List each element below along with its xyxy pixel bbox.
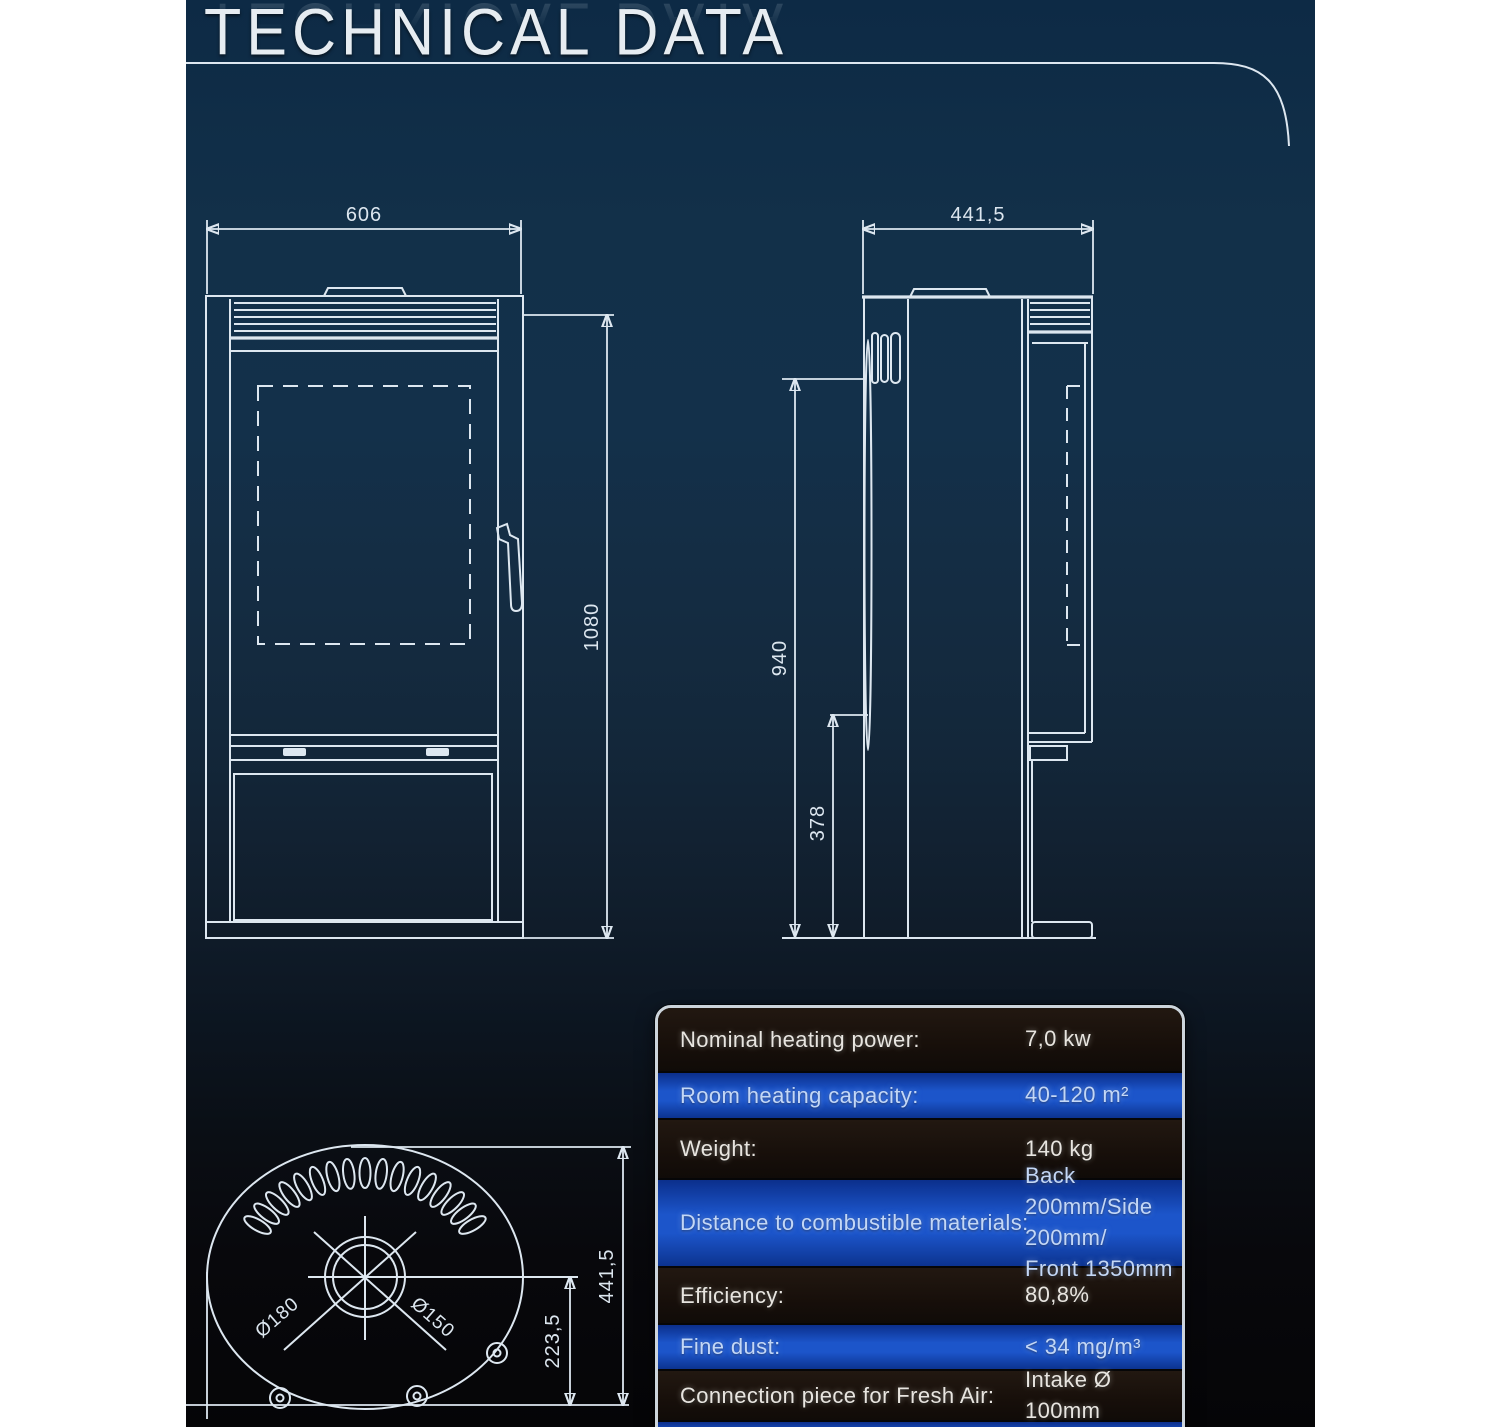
top-view-drawing: Ø180 Ø150 223,5 441,5 bbox=[186, 1145, 631, 1419]
spec-label: Connection piece for Fresh Air: bbox=[658, 1383, 1025, 1409]
spec-label: Weight: bbox=[658, 1136, 1025, 1162]
spec-value: 140 kg bbox=[1025, 1134, 1182, 1165]
flue-inner-diameter-label: Ø150 bbox=[407, 1293, 459, 1342]
table-row: Room heating capacity: 40-120 m² bbox=[658, 1071, 1182, 1118]
side-height-dimension: 940 bbox=[769, 640, 791, 676]
side-handle-blade bbox=[865, 340, 872, 750]
front-door-glass-outline bbox=[258, 386, 470, 644]
spec-value: 7,0 kw bbox=[1025, 1024, 1182, 1055]
side-handle-bar bbox=[872, 333, 878, 383]
side-handle-bar bbox=[891, 333, 900, 383]
spec-label: Nominal heating power: bbox=[658, 1027, 1025, 1053]
header-underline-swoosh bbox=[186, 63, 1289, 146]
front-door-handle bbox=[497, 524, 522, 611]
side-depth-dimension: 441,5 bbox=[950, 204, 1005, 226]
spec-value: 80,8% bbox=[1025, 1280, 1182, 1311]
spec-label: Fine dust: bbox=[658, 1334, 1025, 1360]
content-panel: TECHNICAL DATA TECHNICAL DATA bbox=[186, 0, 1315, 1427]
flue-outer-diameter-label: Ø180 bbox=[251, 1293, 303, 1342]
spec-label: Room heating capacity: bbox=[658, 1083, 1025, 1109]
side-view-drawing: 441,5 bbox=[769, 204, 1096, 938]
page: TECHNICAL DATA TECHNICAL DATA bbox=[0, 0, 1500, 1427]
top-center-dimension: 223,5 bbox=[542, 1313, 564, 1368]
spec-value: 40-120 m² bbox=[1025, 1080, 1182, 1111]
specification-table: Nominal heating power: 7,0 kw Room heati… bbox=[655, 1005, 1185, 1427]
side-plinth-dimension: 378 bbox=[807, 805, 829, 841]
spec-value: Intake Ø 100mm bbox=[1025, 1365, 1182, 1427]
table-row: Connection piece for Fresh Air: Intake Ø… bbox=[658, 1369, 1182, 1420]
front-width-dimension: 606 bbox=[346, 204, 382, 226]
spec-value: < 34 mg/m³ bbox=[1025, 1332, 1182, 1363]
top-height-dimension: 441,5 bbox=[596, 1248, 618, 1303]
spec-label: Distance to combustible materials: bbox=[658, 1210, 1025, 1236]
spec-label: Efficiency: bbox=[658, 1283, 1025, 1309]
table-row: Nominal heating power: 7,0 kw bbox=[658, 1008, 1182, 1071]
table-row: Distance to combustible materials: Back … bbox=[658, 1178, 1182, 1266]
front-height-dimension: 1080 bbox=[581, 603, 603, 652]
front-view-drawing: 606 bbox=[206, 204, 614, 938]
side-handle-bar bbox=[881, 335, 888, 382]
table-row: Fine dust: < 34 mg/m³ bbox=[658, 1323, 1182, 1369]
spec-value: Back 200mm/Side 200mm/ Front 1350mm bbox=[1025, 1161, 1182, 1284]
